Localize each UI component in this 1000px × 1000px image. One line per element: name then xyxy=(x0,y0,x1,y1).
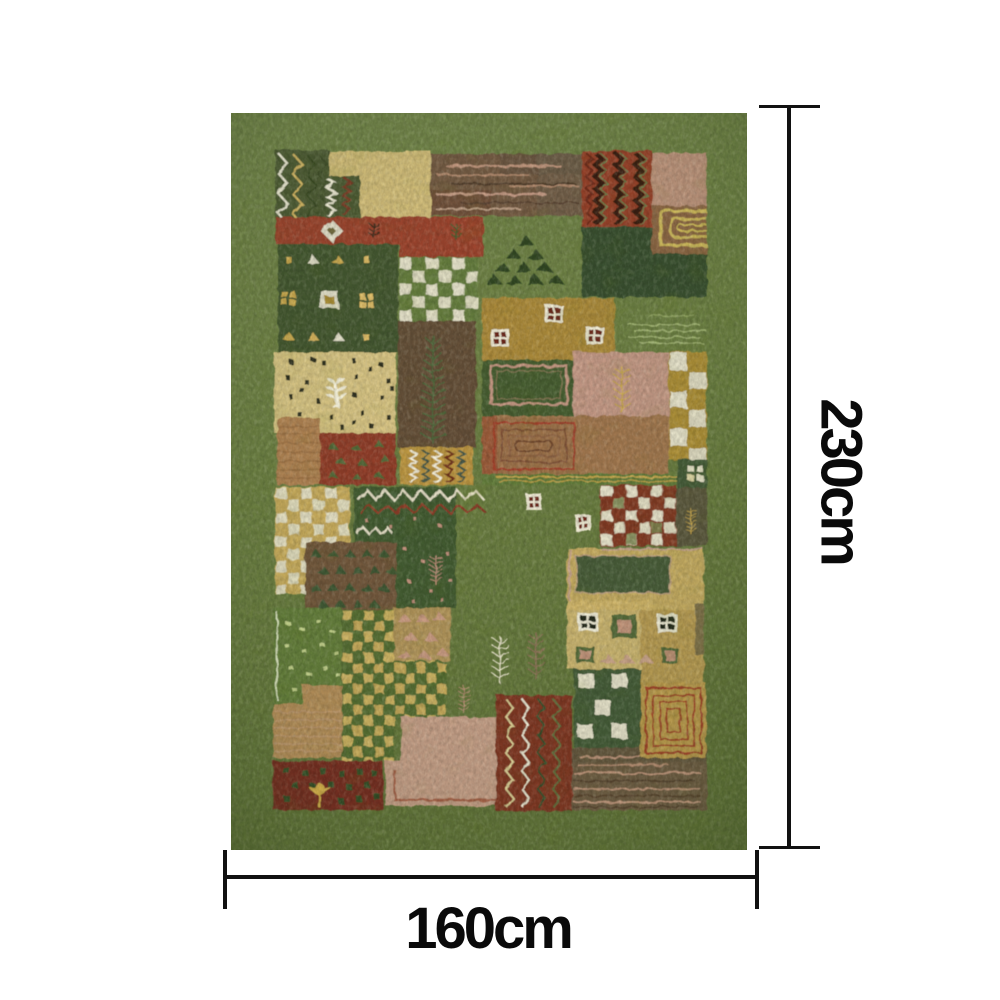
svg-text:230cm: 230cm xyxy=(809,398,874,564)
svg-text:160cm: 160cm xyxy=(405,896,571,961)
